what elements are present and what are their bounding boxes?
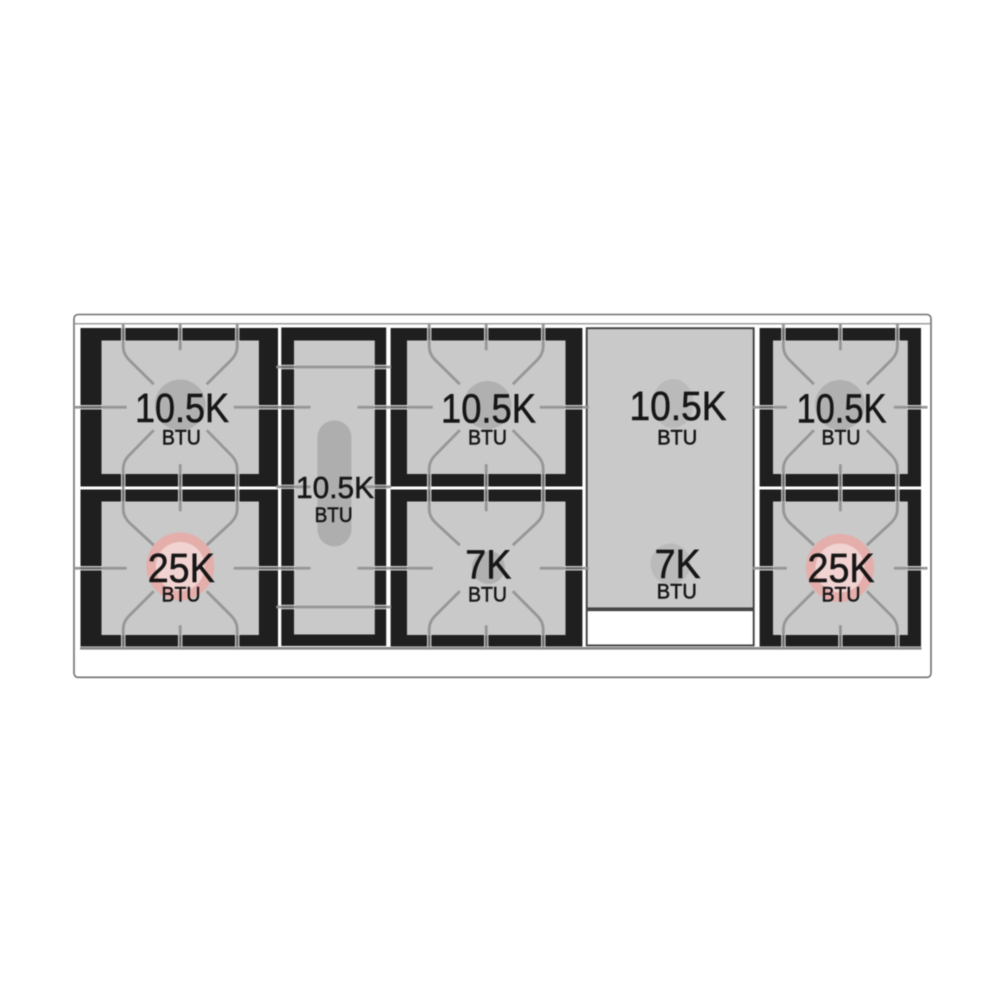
svg-text:BTU: BTU: [822, 426, 861, 450]
svg-text:BTU: BTU: [657, 580, 697, 604]
svg-text:10.5K: 10.5K: [441, 386, 536, 432]
svg-text:10.5K: 10.5K: [797, 386, 887, 432]
svg-text:BTU: BTU: [315, 503, 353, 527]
svg-text:BTU: BTU: [162, 426, 201, 450]
svg-text:BTU: BTU: [822, 583, 861, 607]
svg-text:10.5K: 10.5K: [630, 383, 727, 429]
svg-text:BTU: BTU: [468, 426, 507, 450]
svg-text:BTU: BTU: [468, 583, 507, 607]
svg-text:10.5K: 10.5K: [135, 385, 229, 431]
svg-text:10.5K: 10.5K: [296, 470, 374, 505]
svg-text:7K: 7K: [465, 542, 511, 588]
svg-text:BTU: BTU: [162, 583, 201, 607]
svg-text:BTU: BTU: [657, 425, 697, 449]
